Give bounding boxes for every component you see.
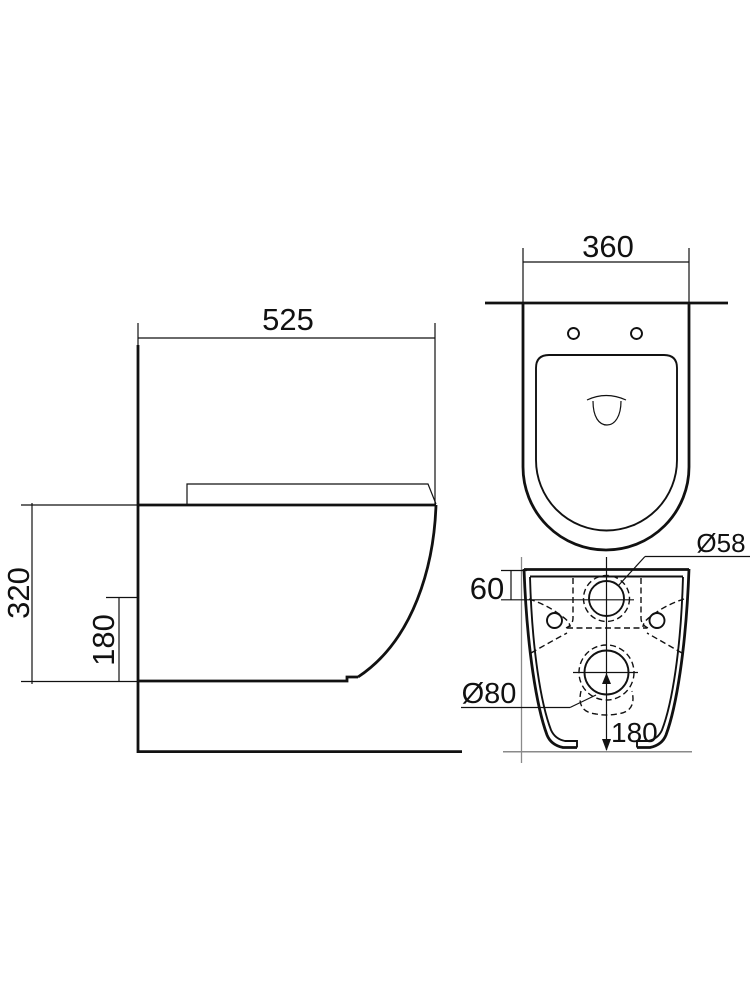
dim-180-rear-arrow-up: [602, 673, 611, 684]
hidden-pocket-right: [641, 578, 648, 628]
rear-outline-left-inner: [530, 577, 577, 748]
bowl-front-curve: [358, 505, 436, 677]
outlet-leader-diagonal: [570, 695, 596, 708]
dim-320-label: 320: [1, 567, 36, 619]
side-view: 525 320 180: [1, 302, 462, 753]
toilet-dimension-drawing: 525 320 180 360: [0, 0, 750, 1000]
rear-mount-hole-right: [650, 613, 665, 628]
dim-60-label: 60: [470, 571, 504, 606]
rear-view: 60 Ø58 Ø80 180: [461, 528, 750, 763]
dim-360-label: 360: [582, 229, 634, 264]
top-view-mount-hole-right: [631, 328, 642, 339]
rear-mount-hole-left: [547, 613, 562, 628]
water-spot-top-arc: [587, 396, 626, 401]
technical-drawing-canvas: 525 320 180 360: [0, 0, 750, 1000]
dim-180-rear-arrow-down: [602, 739, 611, 751]
top-view-inner-bowl: [536, 355, 677, 531]
rear-outline-left-outer: [524, 569, 577, 748]
hidden-wing-right-lower: [647, 633, 682, 653]
hidden-wing-left-upper: [529, 599, 570, 627]
bowl-bottom-edge: [138, 677, 358, 681]
outlet-diameter-label: Ø80: [462, 678, 517, 710]
water-spot-tongue: [593, 401, 621, 425]
dim-180-rear-label: 180: [611, 717, 658, 748]
inlet-diameter-label: Ø58: [696, 528, 745, 558]
hidden-wing-left-lower: [531, 633, 567, 653]
dim-180-side-label: 180: [86, 614, 121, 666]
dim-525-label: 525: [262, 302, 314, 337]
top-view-outer-body: [523, 303, 689, 550]
seat-profile: [187, 484, 436, 504]
top-view-mount-hole-left: [568, 328, 579, 339]
top-view: 360: [485, 229, 728, 550]
